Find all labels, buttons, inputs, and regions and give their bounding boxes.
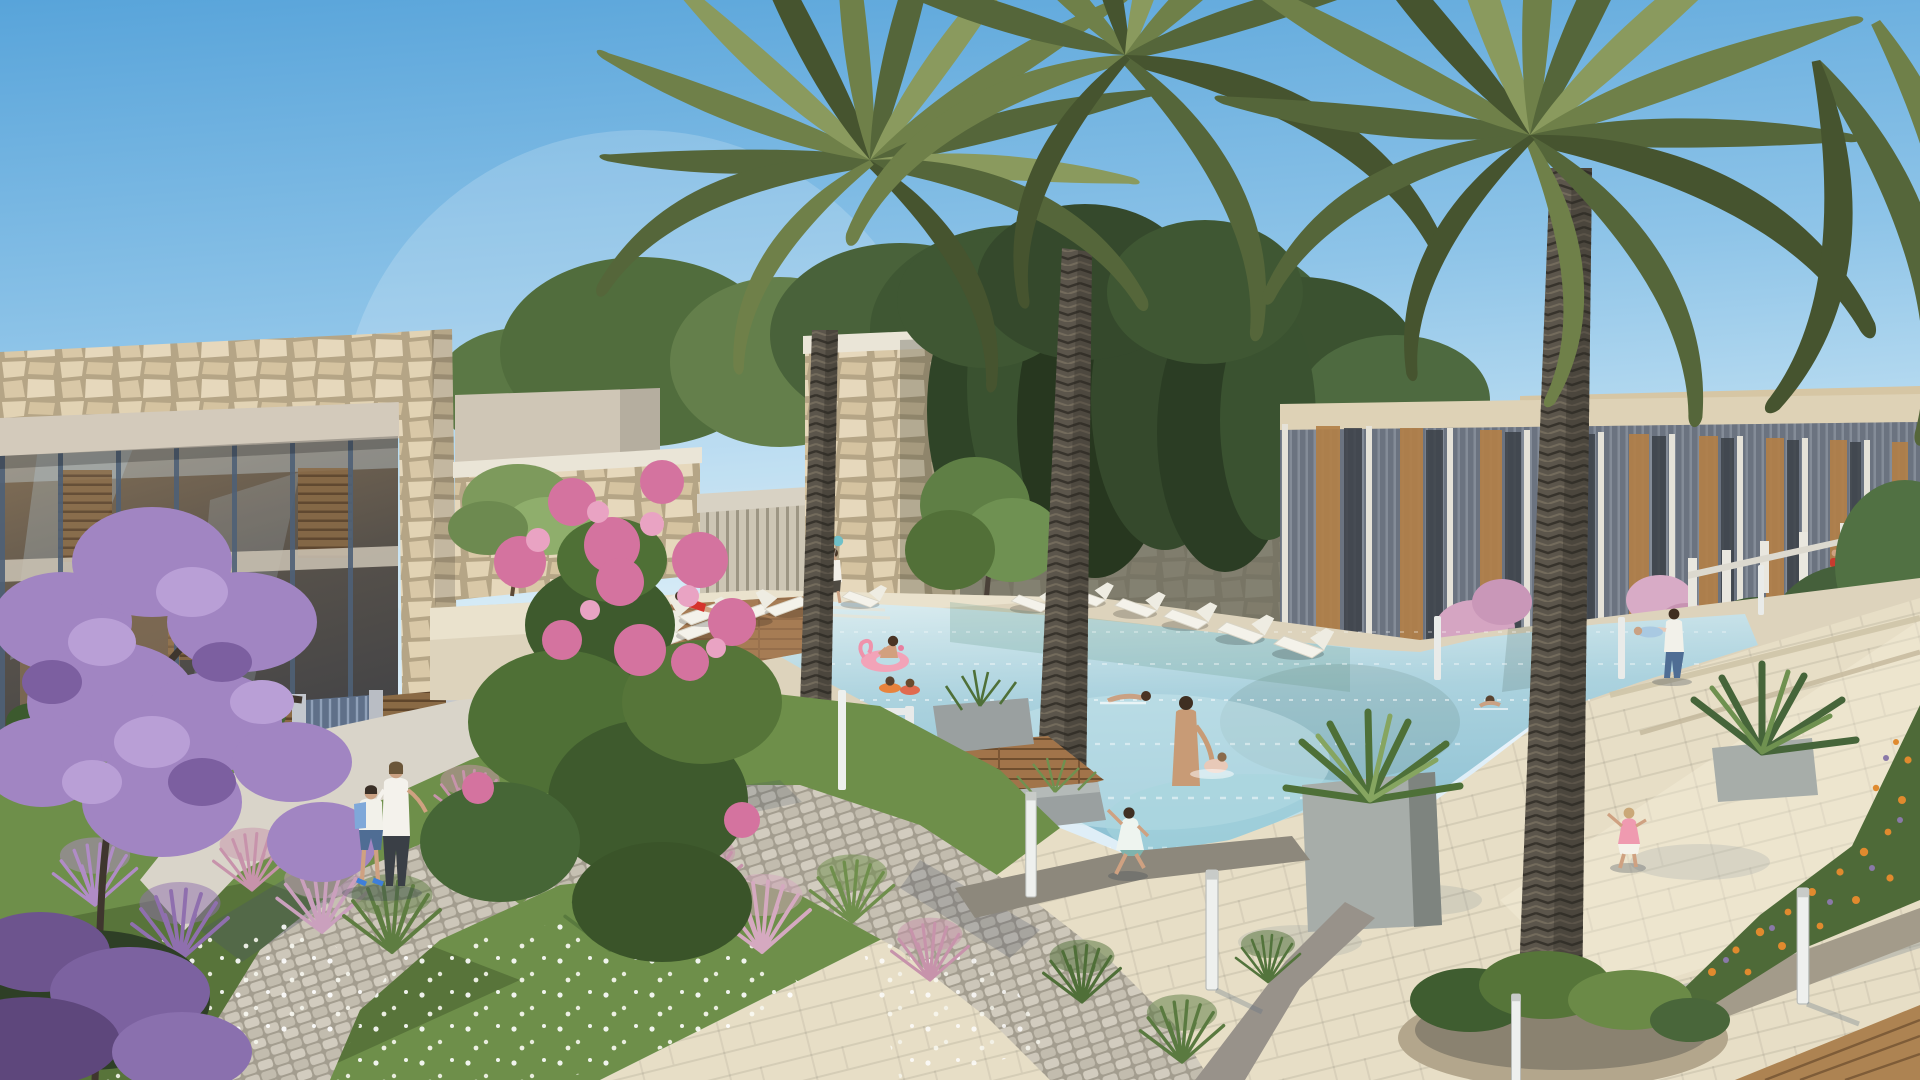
resort-pool-scene (0, 0, 1920, 1080)
boy-backpack (354, 802, 366, 829)
rendering-canvas (0, 0, 1920, 1080)
